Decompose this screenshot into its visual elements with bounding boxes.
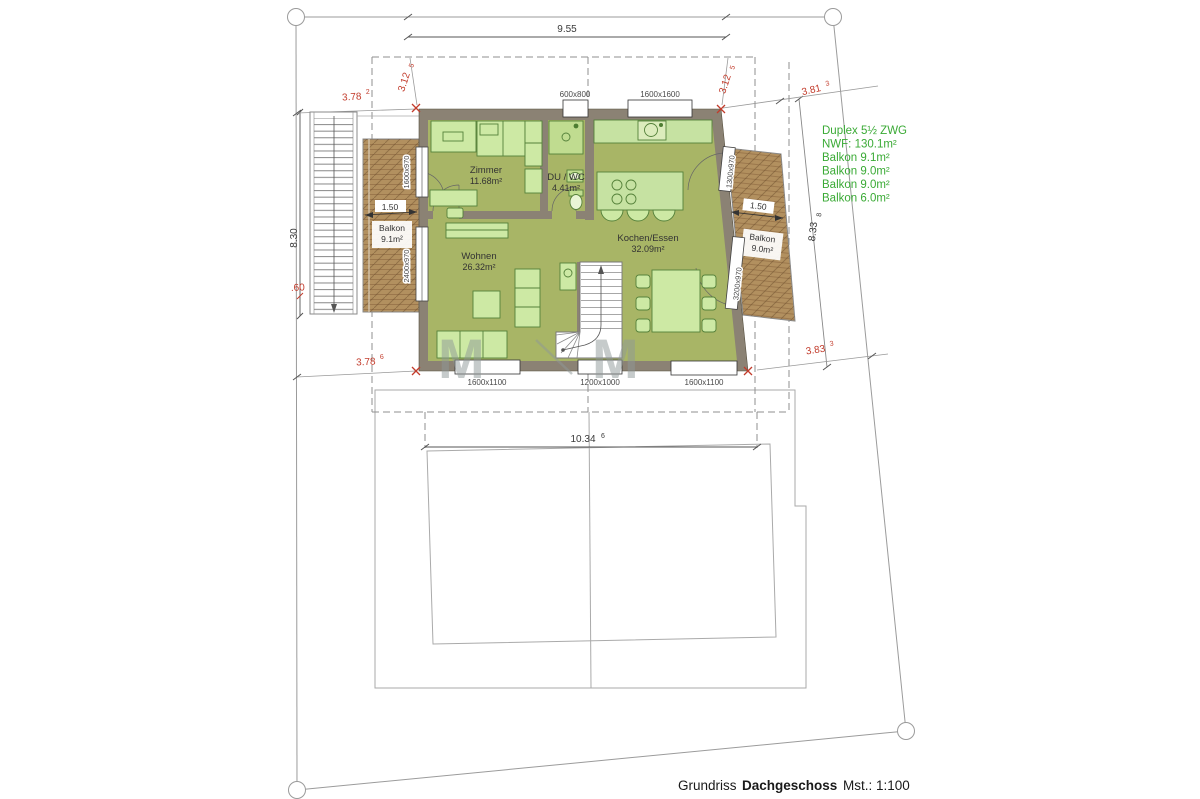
left-balcony-area: 9.1m² [381,234,403,244]
zimmer-name: Zimmer [470,165,502,176]
dining-set [636,270,716,332]
red-dim-right-bottom: 3.83 [805,344,826,358]
dim-top-width: 9.55 [557,24,577,35]
window-label-bottom-right: 1600x1100 [685,378,725,387]
dim-right-depth-sup: 8 [816,212,823,217]
left-balcony-name: Balkon [379,223,405,233]
title-floor: Dachgeschoss [742,778,837,793]
duwc-name: DU / WC [547,172,585,183]
red-dim-right-top: 3.81 [801,83,823,98]
legend-line-5: Balkon 9.0m² [822,179,890,191]
title-prefix: Grundriss [678,778,737,793]
dim-lower-width-sup: 6 [601,433,605,440]
floor-plan-svg: 9.55 10.34 6 8.33 8 8.30 .60 3.78 2 3.12… [0,0,1200,799]
window-label-left-lower: 2400x970 [402,250,411,283]
red-dim-left-top-sup: 2 [366,89,370,96]
zimmer-area: 11.68m² [470,176,502,186]
legend-line-4: Balkon 9.0m² [822,166,890,178]
red-dim-roof-right-sup: 5 [729,65,737,71]
red-dim-left-top: 3.78 [342,91,363,103]
title-scale: Mst.: 1:100 [843,778,910,793]
survey-point-top-left [288,9,305,26]
watermark-letter-1: M [438,327,485,390]
survey-point-top-right [825,9,842,26]
floor-plan-page: 9.55 10.34 6 8.33 8 8.30 .60 3.78 2 3.12… [0,0,1200,799]
apartment-legend: Duplex 5½ ZWG NWF: 130.1m² Balkon 9.1m² … [822,125,907,205]
survey-point-bottom-right [898,723,915,740]
dimension-right: 8.33 8 [795,96,831,370]
red-dim-left-bottom-sup: 6 [380,354,384,361]
wohnen-area: 26.32m² [462,262,495,272]
drawing-title: Grundriss Dachgeschoss Mst.: 1:100 [678,778,910,793]
dim-right-depth: 8.33 [807,221,820,242]
window-label-top-large: 1600x1600 [640,90,680,99]
legend-line-2: NWF: 130.1m² [822,139,897,151]
dim-lower-width: 10.34 [570,434,595,445]
red-dim-left-bottom: 3.78 [356,356,376,368]
dim-stair-height: 8.30 [289,228,300,248]
legend-line-3: Balkon 9.1m² [822,152,890,164]
legend-line-1: Duplex 5½ ZWG [822,125,907,137]
bar-stools [601,210,675,221]
red-dim-right-top-sup: 3 [825,80,830,88]
legend-line-6: Balkon 6.0m² [822,193,890,205]
kochen-name: Kochen/Essen [617,233,678,244]
red-dim-right-bottom-sup: 3 [829,340,834,348]
watermark-letter-2: M [592,327,639,390]
duwc-area: 4.41m² [552,183,580,193]
window-label-top-small: 600x800 [560,90,591,99]
kochen-area: 32.09m² [631,244,664,254]
wohnen-name: Wohnen [461,251,496,262]
dimension-left: 8.30 .60 [289,109,305,319]
dimension-top: 9.55 [404,14,730,40]
survey-point-bottom-left [289,782,306,799]
right-balcony-depth: 1.50 [750,200,768,212]
red-dim-roof-right: 3.12 [717,73,734,95]
left-balcony-depth: 1.50 [382,202,399,212]
dim-stair-offset: .60 [291,282,306,294]
red-dim-roof-left-sup: 5 [408,63,416,69]
window-label-left-upper: 1600x970 [402,156,411,189]
red-dim-roof-left: 3.12 [396,71,413,93]
